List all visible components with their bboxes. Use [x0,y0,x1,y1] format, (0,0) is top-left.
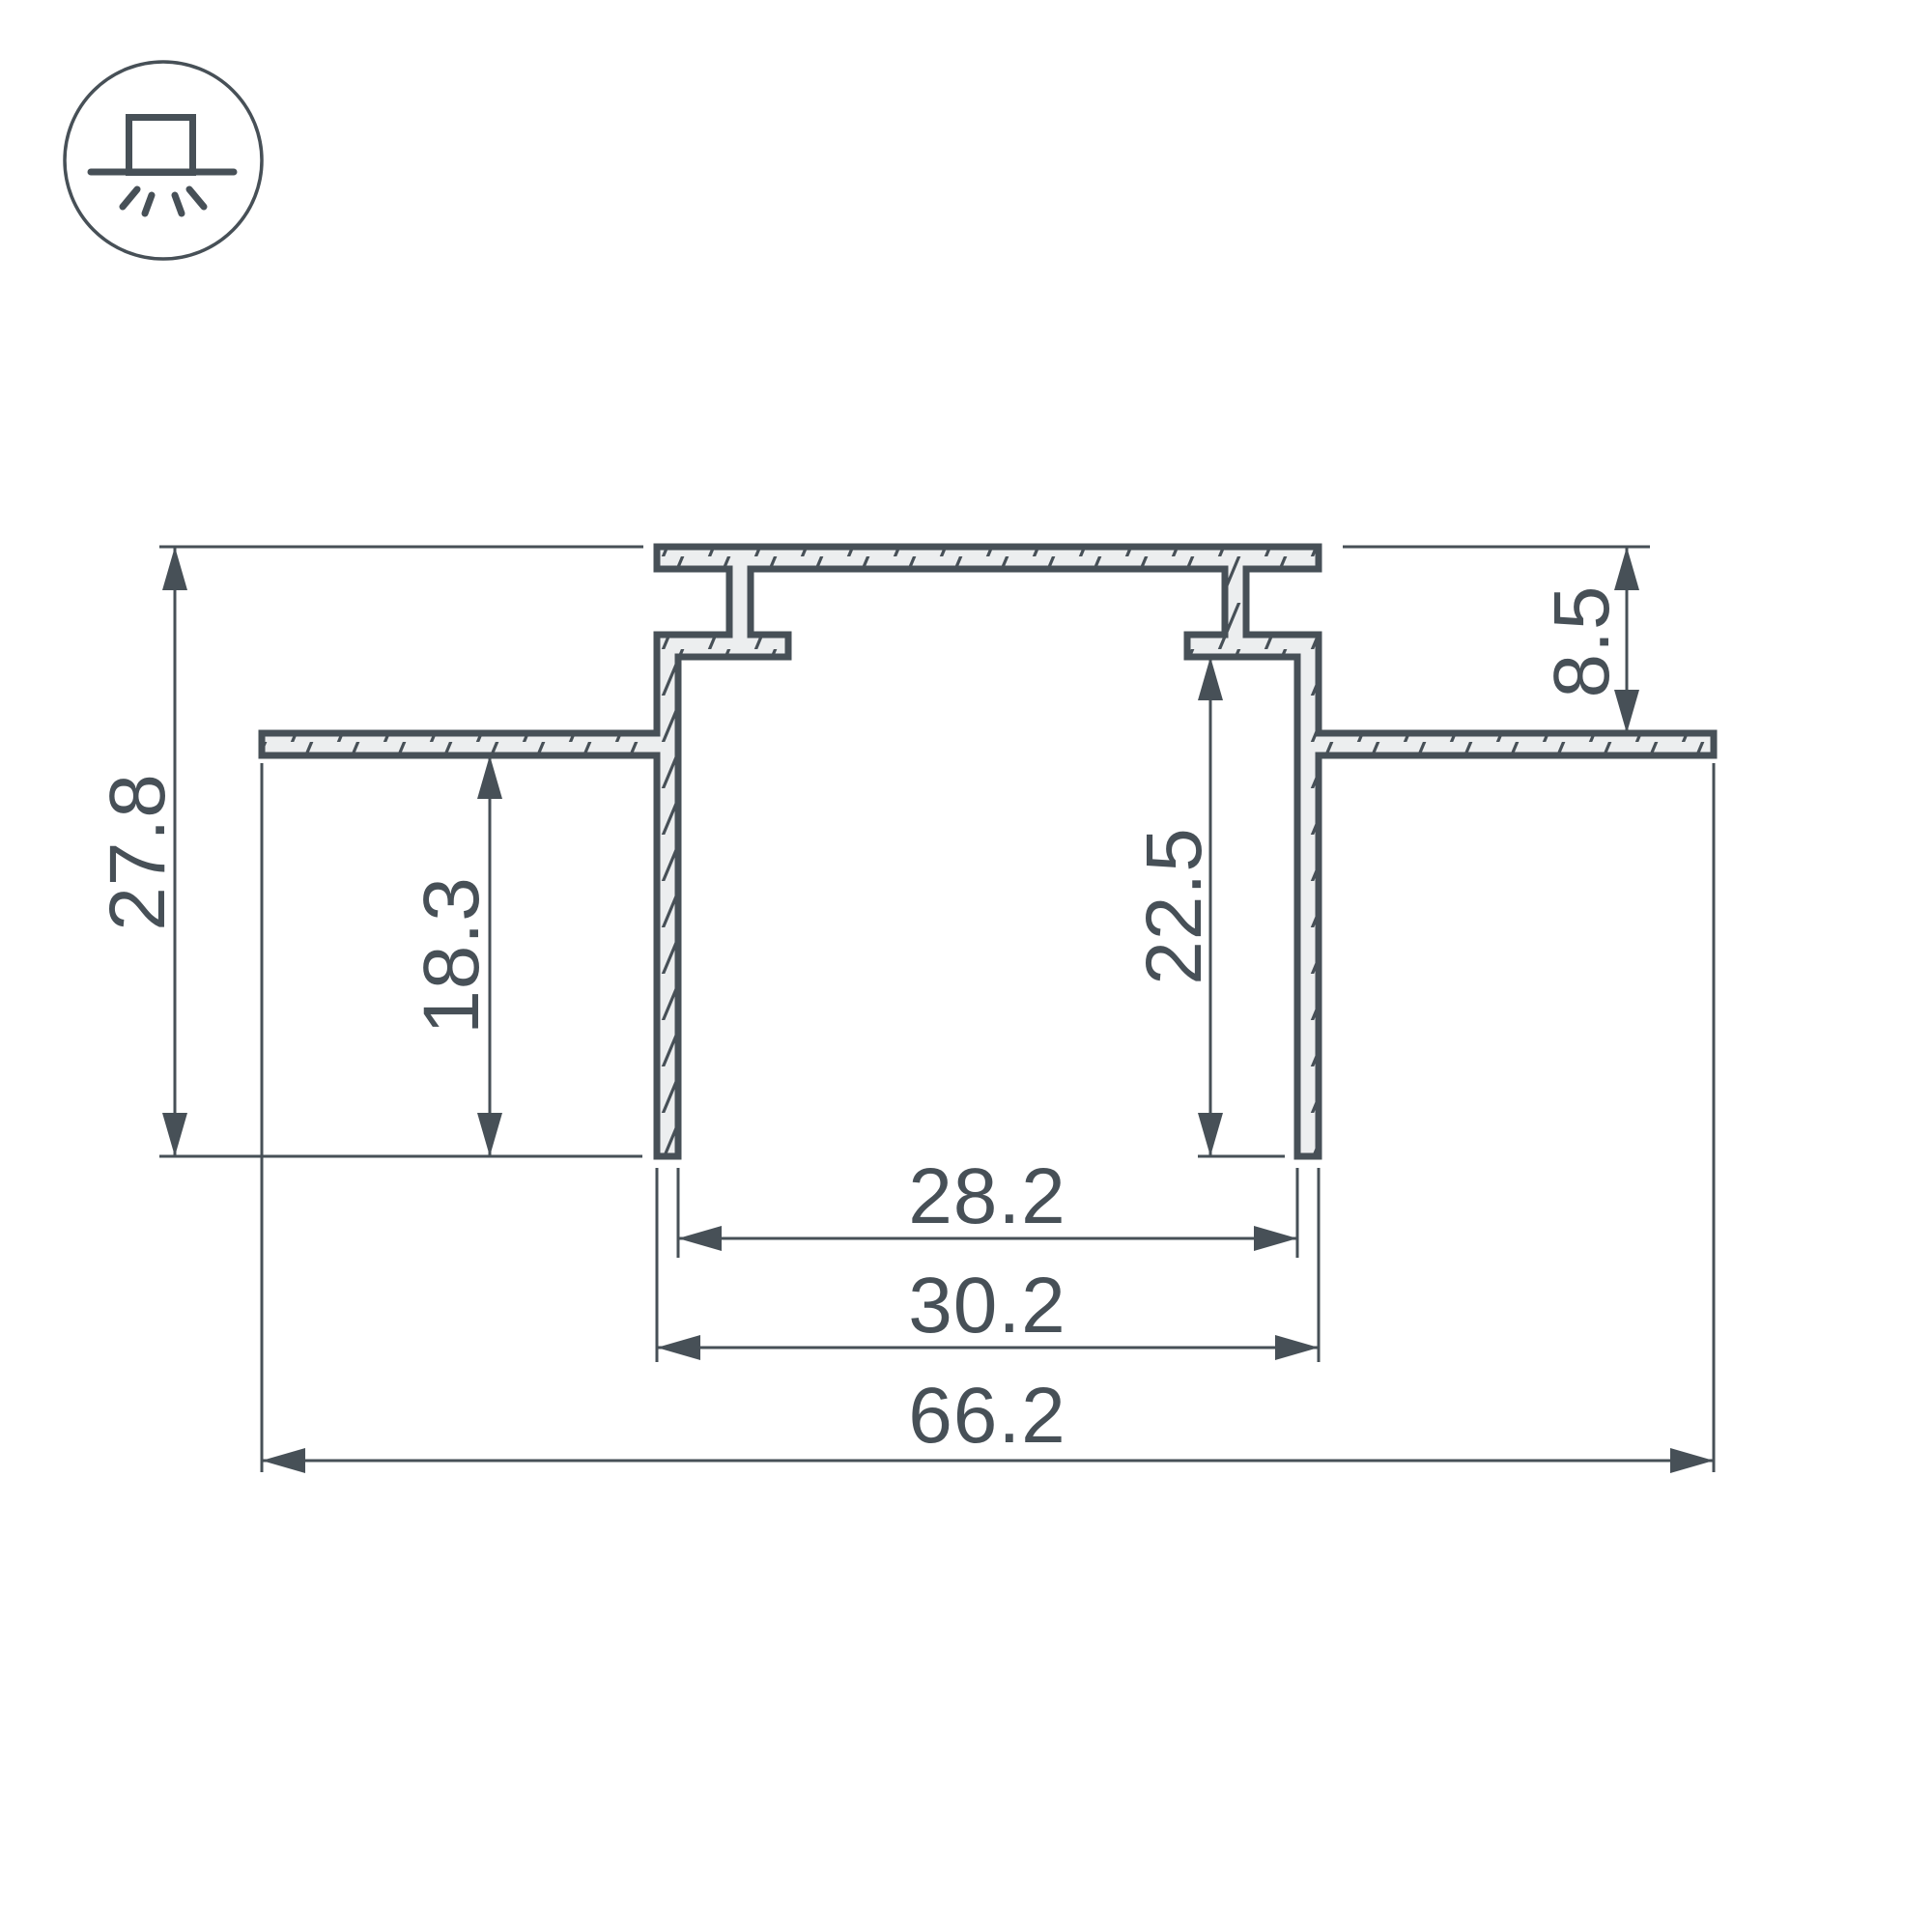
arrowhead-up [477,755,502,799]
recessed-light-mounting-icon [65,62,262,259]
technical-drawing-page: 27.8 18.3 8.5 22.5 [0,0,1932,1932]
dimension-label-inner-depth: 22.5 [1130,827,1218,985]
profile-cross-section-drawing: 27.8 18.3 8.5 22.5 [0,0,1932,1932]
dimension-wing-to-bottom-depth: 18.3 [408,755,502,1156]
dimension-label-inner-width: 28.2 [908,1152,1066,1240]
dimension-inner-width: 28.2 [678,1152,1297,1258]
arrowhead-up [1198,657,1223,700]
arrowhead-up [162,547,187,590]
dimension-inner-depth: 22.5 [1130,657,1285,1156]
icon-light-rays [123,189,204,213]
arrowhead-left [262,1448,305,1473]
arrowhead-up [1614,547,1639,590]
arrowhead-right [1670,1448,1714,1473]
arrowhead-down [1198,1113,1223,1156]
dimension-label-top-to-wing-height: 8.5 [1538,585,1626,698]
profile-body [262,547,1714,1156]
arrowhead-down [162,1113,187,1156]
arrowhead-left [678,1226,722,1251]
arrowhead-right [1254,1226,1297,1251]
dimension-top-to-wing-height: 8.5 [1343,547,1650,733]
dimension-label-overall-width: 66.2 [908,1372,1066,1460]
dimension-label-overall-height: 27.8 [94,773,182,931]
icon-circle [65,62,262,259]
dimension-overall-height: 27.8 [94,547,643,1156]
arrowhead-left [657,1335,700,1360]
dimension-label-outer-width: 30.2 [908,1262,1066,1350]
arrowhead-down [477,1113,502,1156]
icon-fixture-box [129,118,193,173]
arrowhead-right [1275,1335,1319,1360]
dimension-label-wing-to-bottom-depth: 18.3 [408,876,496,1035]
